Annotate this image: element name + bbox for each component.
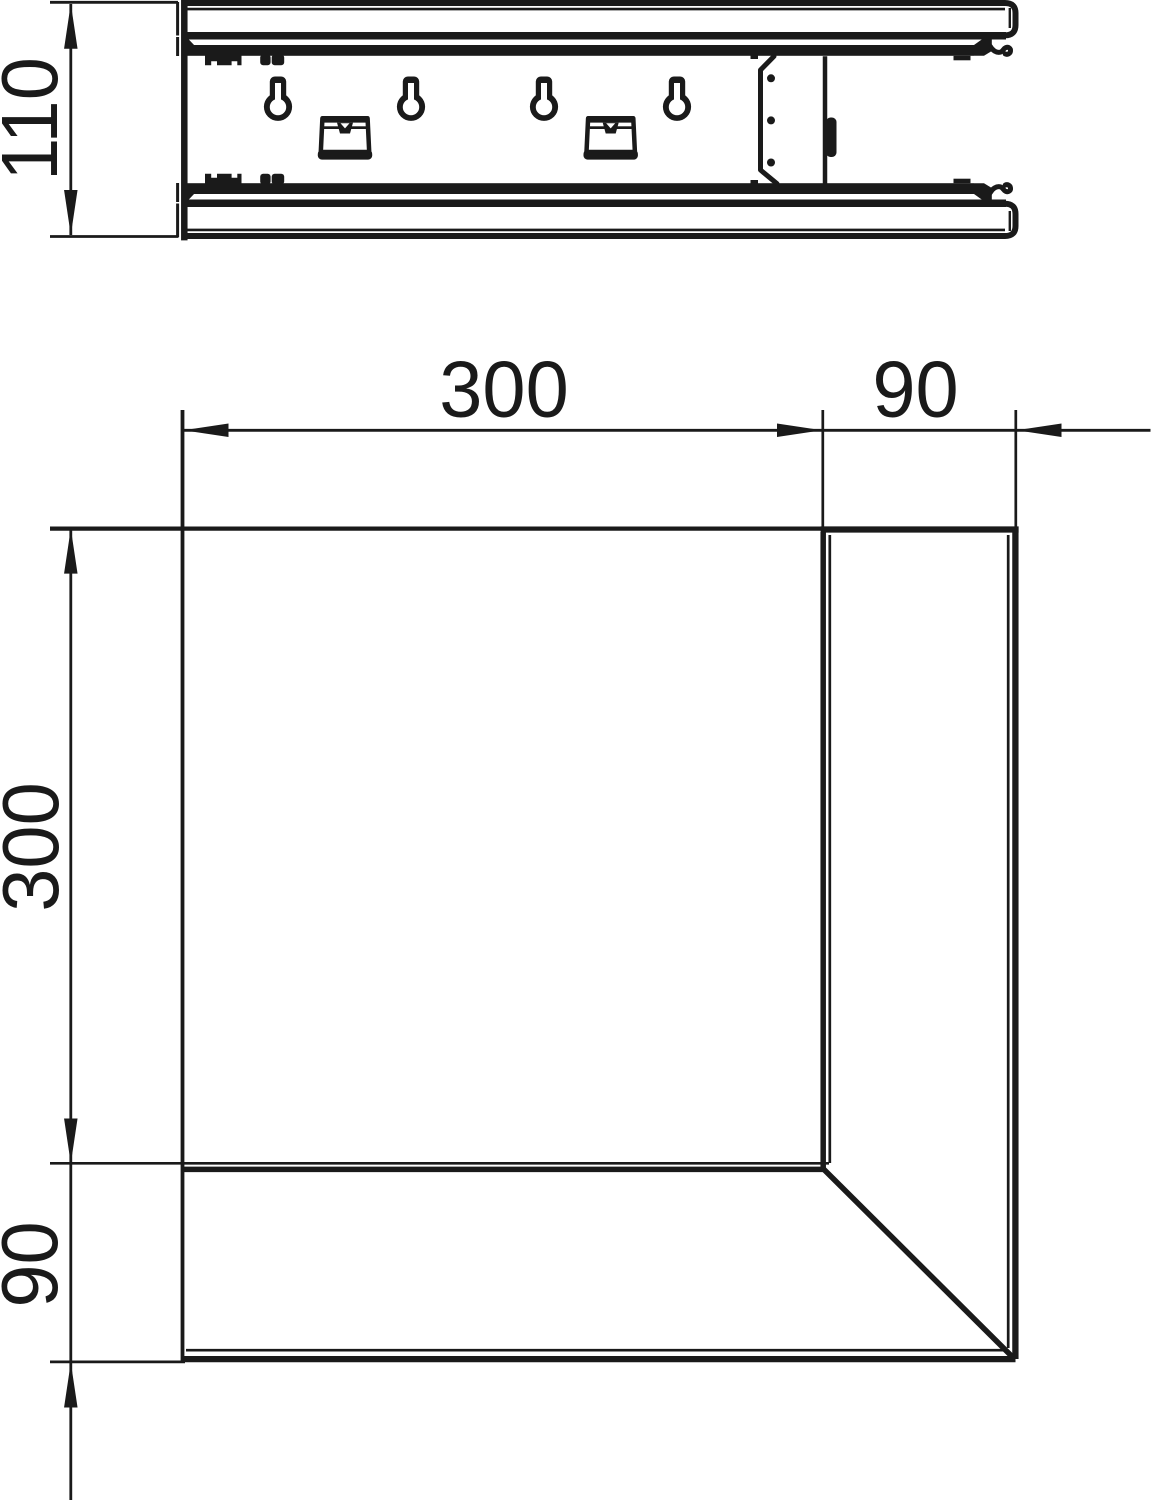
svg-text:90: 90 bbox=[872, 344, 958, 433]
svg-text:110: 110 bbox=[0, 57, 74, 181]
svg-text:300: 300 bbox=[439, 344, 568, 433]
svg-text:90: 90 bbox=[0, 1221, 74, 1307]
svg-text:300: 300 bbox=[0, 782, 75, 911]
